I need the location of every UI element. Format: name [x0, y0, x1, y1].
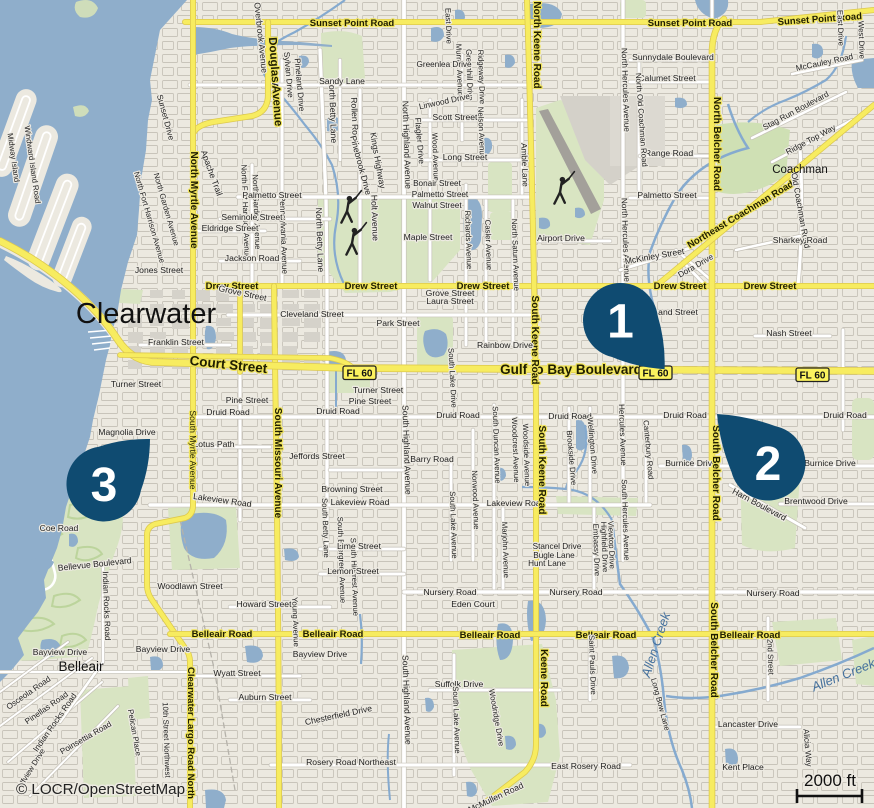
svg-text:Wood Avenue: Wood Avenue — [430, 133, 441, 182]
svg-text:Druid Road: Druid Road — [206, 407, 250, 417]
svg-text:Keene Road: Keene Road — [538, 649, 549, 707]
svg-text:Pine Street: Pine Street — [226, 395, 269, 405]
svg-text:Drew Street: Drew Street — [654, 281, 708, 292]
svg-text:Belleair Road: Belleair Road — [460, 630, 521, 641]
svg-text:South Missouri Avenue: South Missouri Avenue — [272, 408, 283, 519]
svg-text:Airport Drive: Airport Drive — [537, 233, 585, 243]
svg-text:Holt Avenue: Holt Avenue — [369, 195, 381, 242]
svg-text:Ridgeway Drive: Ridgeway Drive — [476, 49, 487, 104]
svg-text:Lancaster Drive: Lancaster Drive — [718, 719, 778, 729]
svg-text:Druid Road: Druid Road — [548, 411, 592, 421]
svg-text:Greenlea Drive: Greenlea Drive — [416, 60, 472, 69]
svg-text:Eldridge Street: Eldridge Street — [202, 223, 259, 233]
svg-text:Cleveland Street: Cleveland Street — [280, 309, 344, 319]
svg-text:Turner Street: Turner Street — [353, 385, 404, 395]
svg-text:South Belcher Road: South Belcher Road — [710, 425, 721, 521]
svg-text:Sunset Point Road: Sunset Point Road — [310, 18, 395, 29]
svg-text:Rosery Road Northeast: Rosery Road Northeast — [306, 757, 396, 767]
svg-text:Browning Street: Browning Street — [321, 484, 383, 494]
svg-text:Gulf to Bay Boulevard: Gulf to Bay Boulevard — [500, 362, 642, 377]
svg-text:Casler Avenue: Casler Avenue — [483, 219, 494, 270]
svg-text:Turner Street: Turner Street — [111, 379, 162, 389]
svg-text:Seminole Street: Seminole Street — [221, 212, 283, 222]
svg-text:1: 1 — [607, 296, 634, 349]
svg-text:Belleair: Belleair — [58, 659, 104, 674]
svg-text:Clearwater: Clearwater — [76, 298, 217, 330]
svg-text:and Street: and Street — [658, 307, 698, 317]
svg-text:Clearwater Largo Road North: Clearwater Largo Road North — [185, 667, 196, 799]
svg-text:Belleair Road: Belleair Road — [192, 629, 253, 640]
svg-text:Maple Street: Maple Street — [404, 232, 453, 242]
svg-text:Barry Road: Barry Road — [410, 454, 454, 464]
svg-text:Burnice Drive: Burnice Drive — [804, 458, 856, 468]
svg-text:Young Avenue: Young Avenue — [290, 597, 301, 647]
svg-text:Coe Road: Coe Road — [40, 523, 79, 533]
svg-text:Lotus Path: Lotus Path — [193, 439, 234, 449]
svg-text:East Drive: East Drive — [443, 8, 453, 44]
svg-text:© LOCR/OpenStreetMap: © LOCR/OpenStreetMap — [16, 781, 185, 798]
svg-text:Coachman: Coachman — [772, 164, 828, 176]
svg-text:Sharkey Road: Sharkey Road — [773, 235, 828, 245]
svg-text:South Keene Road: South Keene Road — [536, 426, 547, 515]
svg-text:North Keene Road: North Keene Road — [531, 1, 542, 88]
svg-text:Jeffords Street: Jeffords Street — [289, 451, 345, 461]
svg-text:Nursery Road: Nursery Road — [423, 587, 476, 597]
svg-text:West Drive: West Drive — [856, 21, 866, 59]
svg-text:Sunset Point Road: Sunset Point Road — [648, 18, 733, 29]
svg-text:Nursery Road: Nursery Road — [746, 588, 799, 598]
svg-text:Auburn Street: Auburn Street — [238, 692, 292, 702]
svg-text:Range Road: Range Road — [645, 148, 693, 158]
svg-text:Palmetto Street: Palmetto Street — [637, 190, 697, 200]
svg-text:Palmetto Street: Palmetto Street — [412, 190, 469, 199]
svg-text:East Rosery Road: East Rosery Road — [551, 761, 621, 771]
svg-text:Amble Lane: Amble Lane — [519, 143, 530, 187]
svg-text:Sunnydale Boulevard: Sunnydale Boulevard — [632, 52, 714, 62]
svg-text:FL 60: FL 60 — [347, 369, 373, 380]
svg-text:Murray Avenue: Murray Avenue — [454, 44, 465, 97]
svg-text:3: 3 — [91, 459, 118, 512]
svg-text:Nash Street: Nash Street — [766, 328, 812, 338]
svg-text:Druid Road: Druid Road — [823, 410, 867, 420]
svg-text:Jackson Road: Jackson Road — [225, 253, 280, 263]
svg-text:Nursery Road: Nursery Road — [549, 587, 602, 597]
svg-text:Belleair Road: Belleair Road — [576, 630, 637, 641]
svg-text:2: 2 — [755, 438, 782, 491]
svg-text:Pine Street: Pine Street — [349, 396, 392, 406]
svg-text:Calumet Street: Calumet Street — [638, 73, 696, 83]
svg-text:Woodlawn Street: Woodlawn Street — [157, 581, 223, 591]
svg-text:Stancel Drive: Stancel Drive — [533, 542, 582, 551]
svg-text:Walnut Street: Walnut Street — [412, 201, 462, 210]
svg-text:Laura Street: Laura Street — [426, 296, 474, 306]
svg-text:Lime Street: Lime Street — [337, 541, 382, 551]
svg-text:Drew Street: Drew Street — [345, 281, 399, 292]
svg-text:FL 60: FL 60 — [643, 369, 669, 380]
svg-text:Wyatt Street: Wyatt Street — [213, 668, 261, 678]
svg-text:East Drive: East Drive — [835, 10, 845, 46]
svg-text:Park Street: Park Street — [377, 318, 421, 328]
svg-text:North Belcher Road: North Belcher Road — [711, 97, 722, 191]
svg-text:Bayview Drive: Bayview Drive — [136, 644, 191, 654]
svg-text:Druid Road: Druid Road — [316, 406, 360, 416]
svg-text:North Myrtle Avenue: North Myrtle Avenue — [188, 151, 199, 248]
svg-text:Rainbow Drive: Rainbow Drive — [477, 340, 533, 350]
svg-text:South Belcher Road: South Belcher Road — [708, 602, 719, 698]
svg-text:Sandy Lane: Sandy Lane — [319, 76, 365, 86]
svg-text:FL 60: FL 60 — [800, 371, 826, 382]
svg-text:Bonair Street: Bonair Street — [413, 179, 462, 188]
svg-text:Druid Road: Druid Road — [436, 410, 480, 420]
svg-text:Bayview Drive: Bayview Drive — [293, 649, 348, 659]
svg-text:Highfield Drive: Highfield Drive — [599, 521, 610, 572]
svg-text:Druid Road: Druid Road — [663, 410, 707, 420]
svg-text:Bayview Drive: Bayview Drive — [33, 647, 88, 657]
svg-text:Scott Street: Scott Street — [433, 112, 479, 122]
svg-text:Long Street: Long Street — [443, 152, 488, 162]
svg-text:Brentwood Drive: Brentwood Drive — [784, 496, 848, 506]
svg-text:Lemon Street: Lemon Street — [327, 566, 379, 576]
svg-text:Hunt Lane: Hunt Lane — [528, 559, 566, 568]
svg-text:Eden Court: Eden Court — [451, 599, 495, 609]
svg-text:South Myrtle Avenue: South Myrtle Avenue — [188, 410, 198, 489]
svg-text:Jones Street: Jones Street — [135, 265, 184, 275]
svg-text:Howard Street: Howard Street — [237, 599, 293, 609]
svg-text:2000 ft: 2000 ft — [804, 771, 856, 790]
svg-text:Palmetto Street: Palmetto Street — [242, 190, 302, 200]
svg-text:Belleair Road: Belleair Road — [303, 629, 364, 640]
svg-text:Kent Place: Kent Place — [722, 762, 764, 772]
svg-text:Lakeview Road: Lakeview Road — [331, 497, 390, 507]
svg-text:Magnolia Drive: Magnolia Drive — [98, 427, 156, 437]
svg-text:Franklin Street: Franklin Street — [148, 337, 204, 347]
svg-text:2nd Street: 2nd Street — [765, 639, 775, 676]
svg-text:Burnice Drive: Burnice Drive — [665, 458, 717, 468]
svg-text:Drew Street: Drew Street — [744, 281, 798, 292]
